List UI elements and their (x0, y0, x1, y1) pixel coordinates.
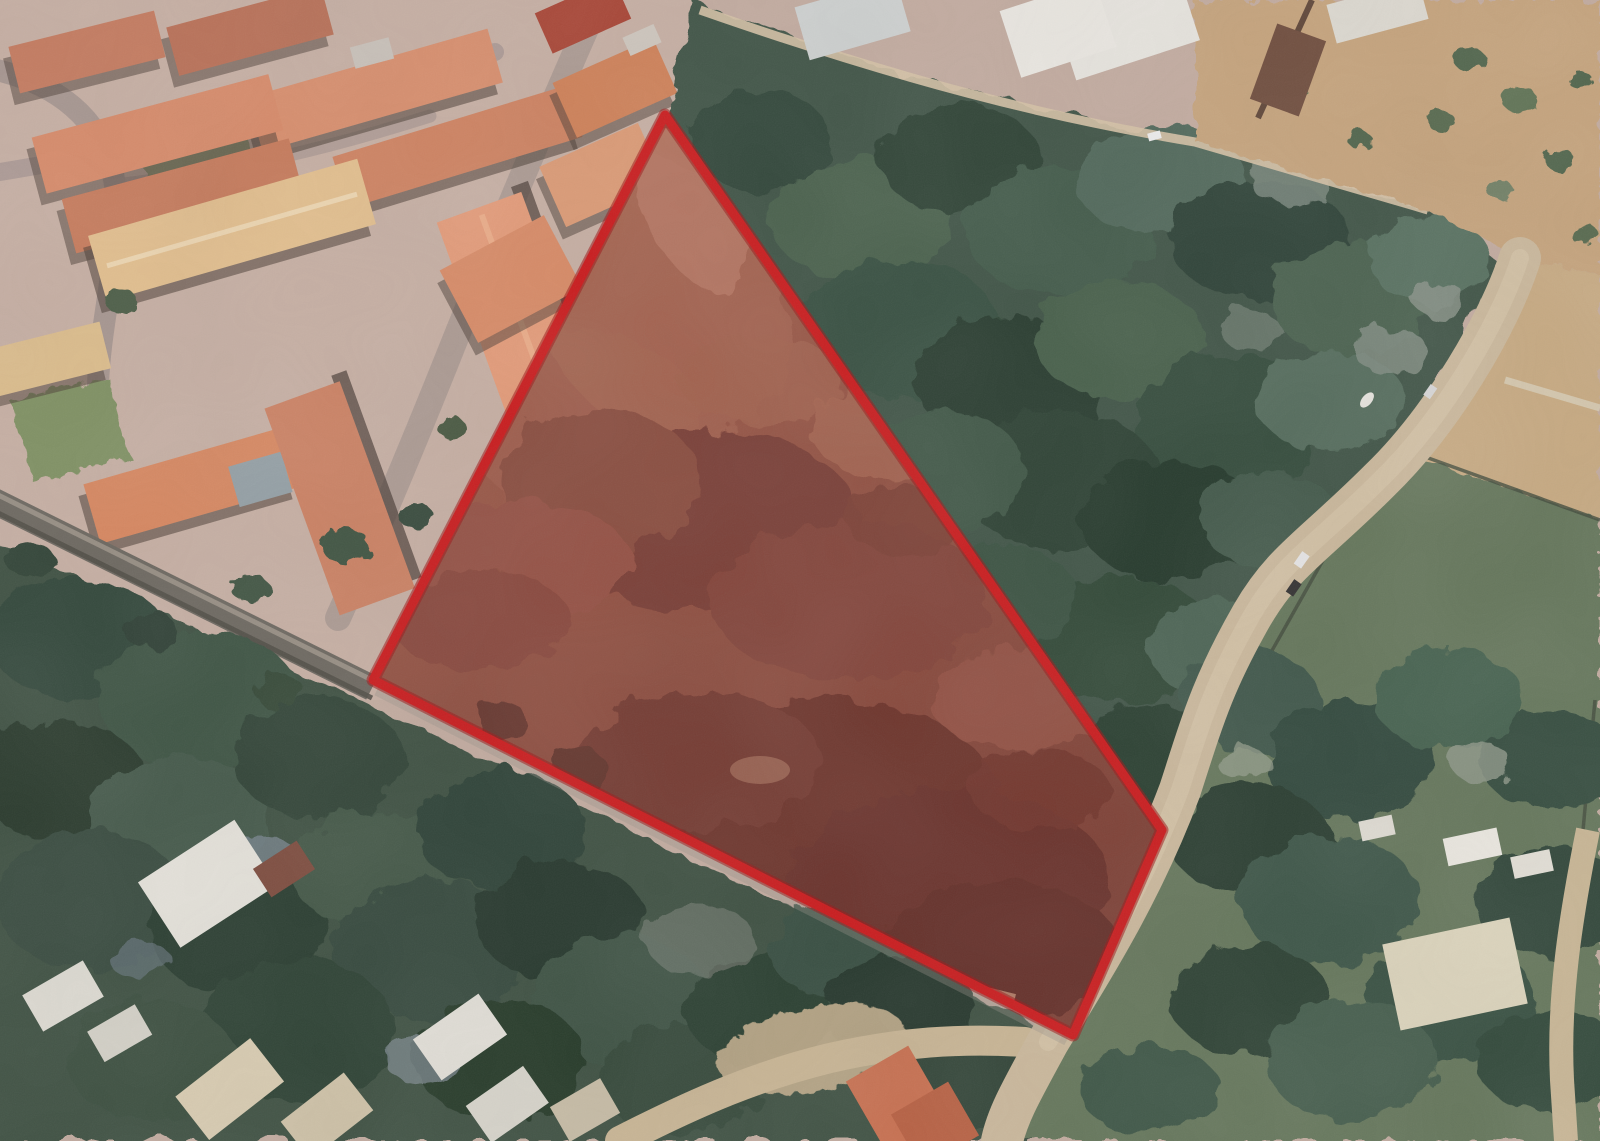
satellite-map-view[interactable] (0, 0, 1600, 1141)
haze-tint (0, 0, 1600, 1141)
satellite-canvas (0, 0, 1600, 1141)
